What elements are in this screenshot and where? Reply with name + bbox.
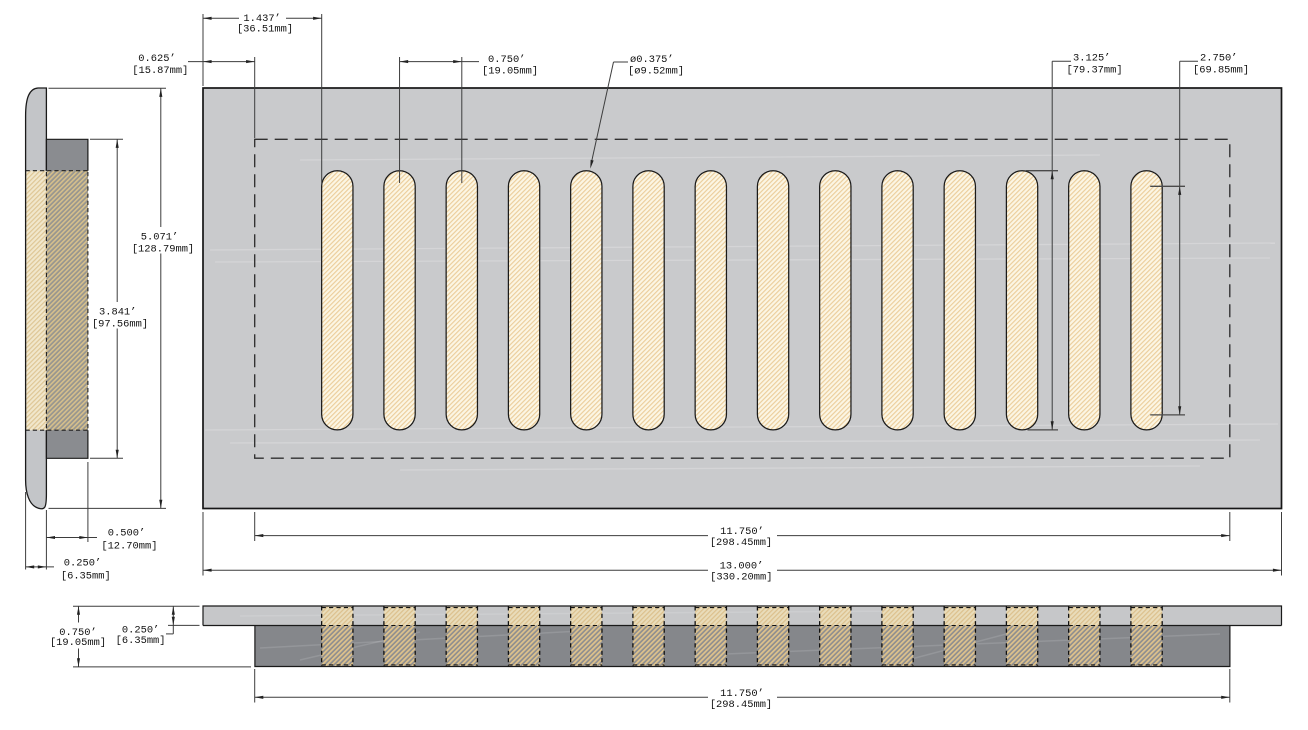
svg-text:0.625’: 0.625’ bbox=[138, 53, 175, 65]
svg-text:[6.35mm]: [6.35mm] bbox=[61, 571, 111, 583]
svg-text:3.125’: 3.125’ bbox=[1073, 53, 1110, 65]
svg-text:[97.56mm]: [97.56mm] bbox=[92, 319, 148, 331]
svg-text:[19.05mm]: [19.05mm] bbox=[50, 637, 106, 649]
svg-text:5.071’: 5.071’ bbox=[141, 232, 178, 244]
svg-text:ø0.375’: ø0.375’ bbox=[630, 54, 674, 66]
svg-text:[79.37mm]: [79.37mm] bbox=[1067, 64, 1123, 76]
svg-text:0.500’: 0.500’ bbox=[108, 527, 145, 539]
svg-text:[ø9.52mm]: [ø9.52mm] bbox=[628, 66, 684, 78]
svg-text:3.841’: 3.841’ bbox=[99, 307, 136, 319]
svg-text:[128.79mm]: [128.79mm] bbox=[132, 244, 194, 256]
svg-text:[69.85mm]: [69.85mm] bbox=[1193, 64, 1249, 76]
svg-text:[12.70mm]: [12.70mm] bbox=[101, 541, 157, 553]
svg-text:[298.45mm]: [298.45mm] bbox=[710, 699, 772, 711]
svg-text:[36.51mm]: [36.51mm] bbox=[237, 24, 293, 36]
svg-text:[298.45mm]: [298.45mm] bbox=[710, 537, 772, 549]
svg-text:[15.87mm]: [15.87mm] bbox=[132, 65, 188, 77]
svg-text:0.750’: 0.750’ bbox=[488, 54, 525, 66]
svg-text:0.250’: 0.250’ bbox=[64, 558, 101, 570]
svg-text:2.750’: 2.750’ bbox=[1200, 53, 1237, 65]
svg-text:[19.05mm]: [19.05mm] bbox=[482, 66, 538, 78]
svg-text:[330.20mm]: [330.20mm] bbox=[710, 571, 772, 583]
svg-text:[6.35mm]: [6.35mm] bbox=[116, 635, 166, 647]
